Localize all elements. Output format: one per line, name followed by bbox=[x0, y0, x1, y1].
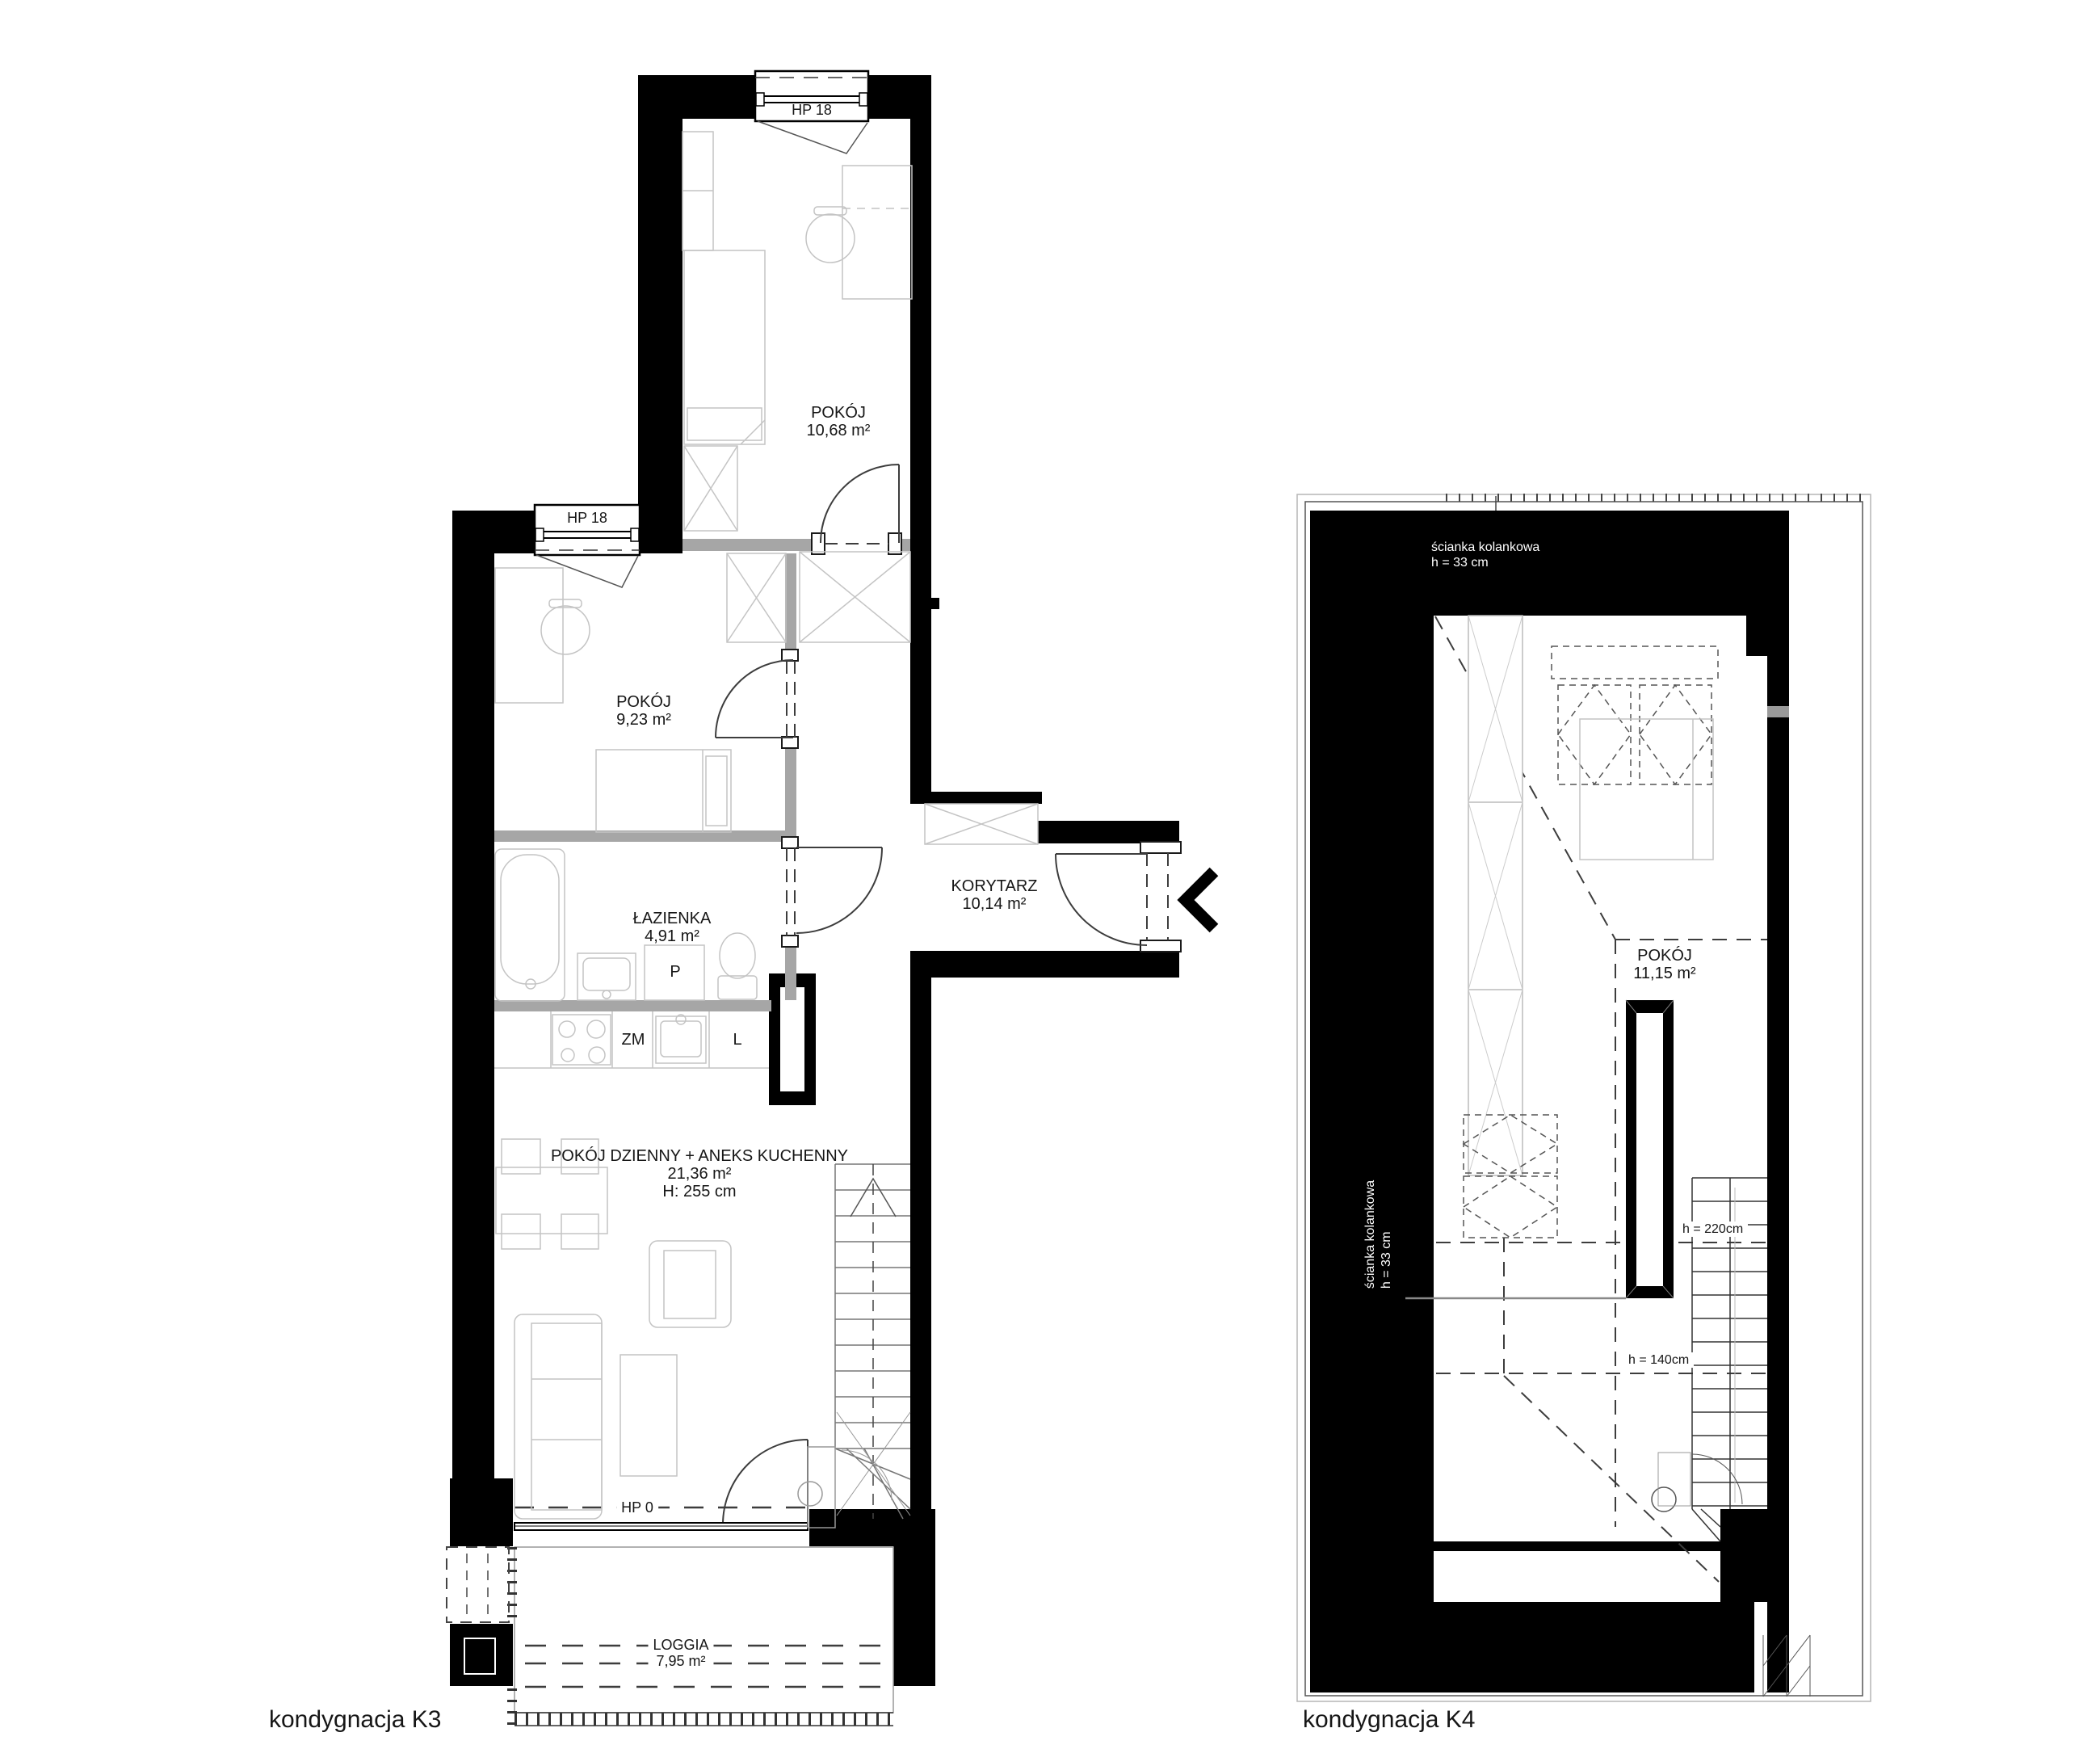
room-label-lazienka: ŁAZIENKA 4,91 m² bbox=[633, 910, 712, 945]
room-label-pokoj-dzienny: POKÓJ DZIENNY + ANEKS KUCHENNY 21,36 m² … bbox=[551, 1147, 848, 1200]
room-label-korytarz: KORYTARZ 10,14 m² bbox=[951, 877, 1037, 913]
room-label-pokoj-left: POKÓJ 9,23 m² bbox=[616, 693, 671, 729]
room-label-pokoj-top: POKÓJ 10,68 m² bbox=[807, 404, 871, 439]
window-label-hp0: HP 0 bbox=[616, 1499, 658, 1516]
room-label-loggia: LOGGIA 7,95 m² bbox=[648, 1637, 713, 1669]
height-label-220: h = 220cm bbox=[1678, 1221, 1748, 1237]
window-label-hp18-left: HP 18 bbox=[567, 510, 607, 526]
fixture-label-dishwasher: ZM bbox=[622, 1031, 645, 1049]
window-label-hp18-top: HP 18 bbox=[792, 102, 832, 118]
k4-chimney bbox=[1626, 1000, 1674, 1298]
k4-roof-window-mark bbox=[1767, 706, 1789, 717]
k3-shaft-core bbox=[780, 987, 804, 1091]
k4-walls bbox=[1310, 511, 1789, 1692]
fixture-label-washing-machine: P bbox=[670, 963, 680, 981]
floor-plan-canvas: HP 18 POKÓJ 10,68 m² HP 18 POKÓJ 9,23 m²… bbox=[0, 0, 2100, 1745]
knee-wall-label-top: ścianka kolankowa h = 33 cm bbox=[1431, 540, 1539, 570]
room-label-pokoj-k4: POKÓJ 11,15 m² bbox=[1633, 947, 1695, 982]
fixture-label-fridge: L bbox=[733, 1031, 741, 1049]
height-label-140: h = 140cm bbox=[1623, 1352, 1694, 1368]
floor-plan-drawing bbox=[0, 0, 2100, 1745]
entrance-arrow-icon bbox=[1186, 872, 1214, 928]
floor-label-k3: kondygnacja K3 bbox=[269, 1706, 442, 1734]
k3-furniture bbox=[494, 132, 1038, 1519]
k3-stairs bbox=[798, 1164, 910, 1528]
k4-furniture bbox=[1464, 616, 1718, 1238]
knee-wall-label-left: ścianka kolankowa h = 33 cm bbox=[1363, 1180, 1395, 1289]
floor-label-k4: kondygnacja K4 bbox=[1303, 1706, 1476, 1734]
